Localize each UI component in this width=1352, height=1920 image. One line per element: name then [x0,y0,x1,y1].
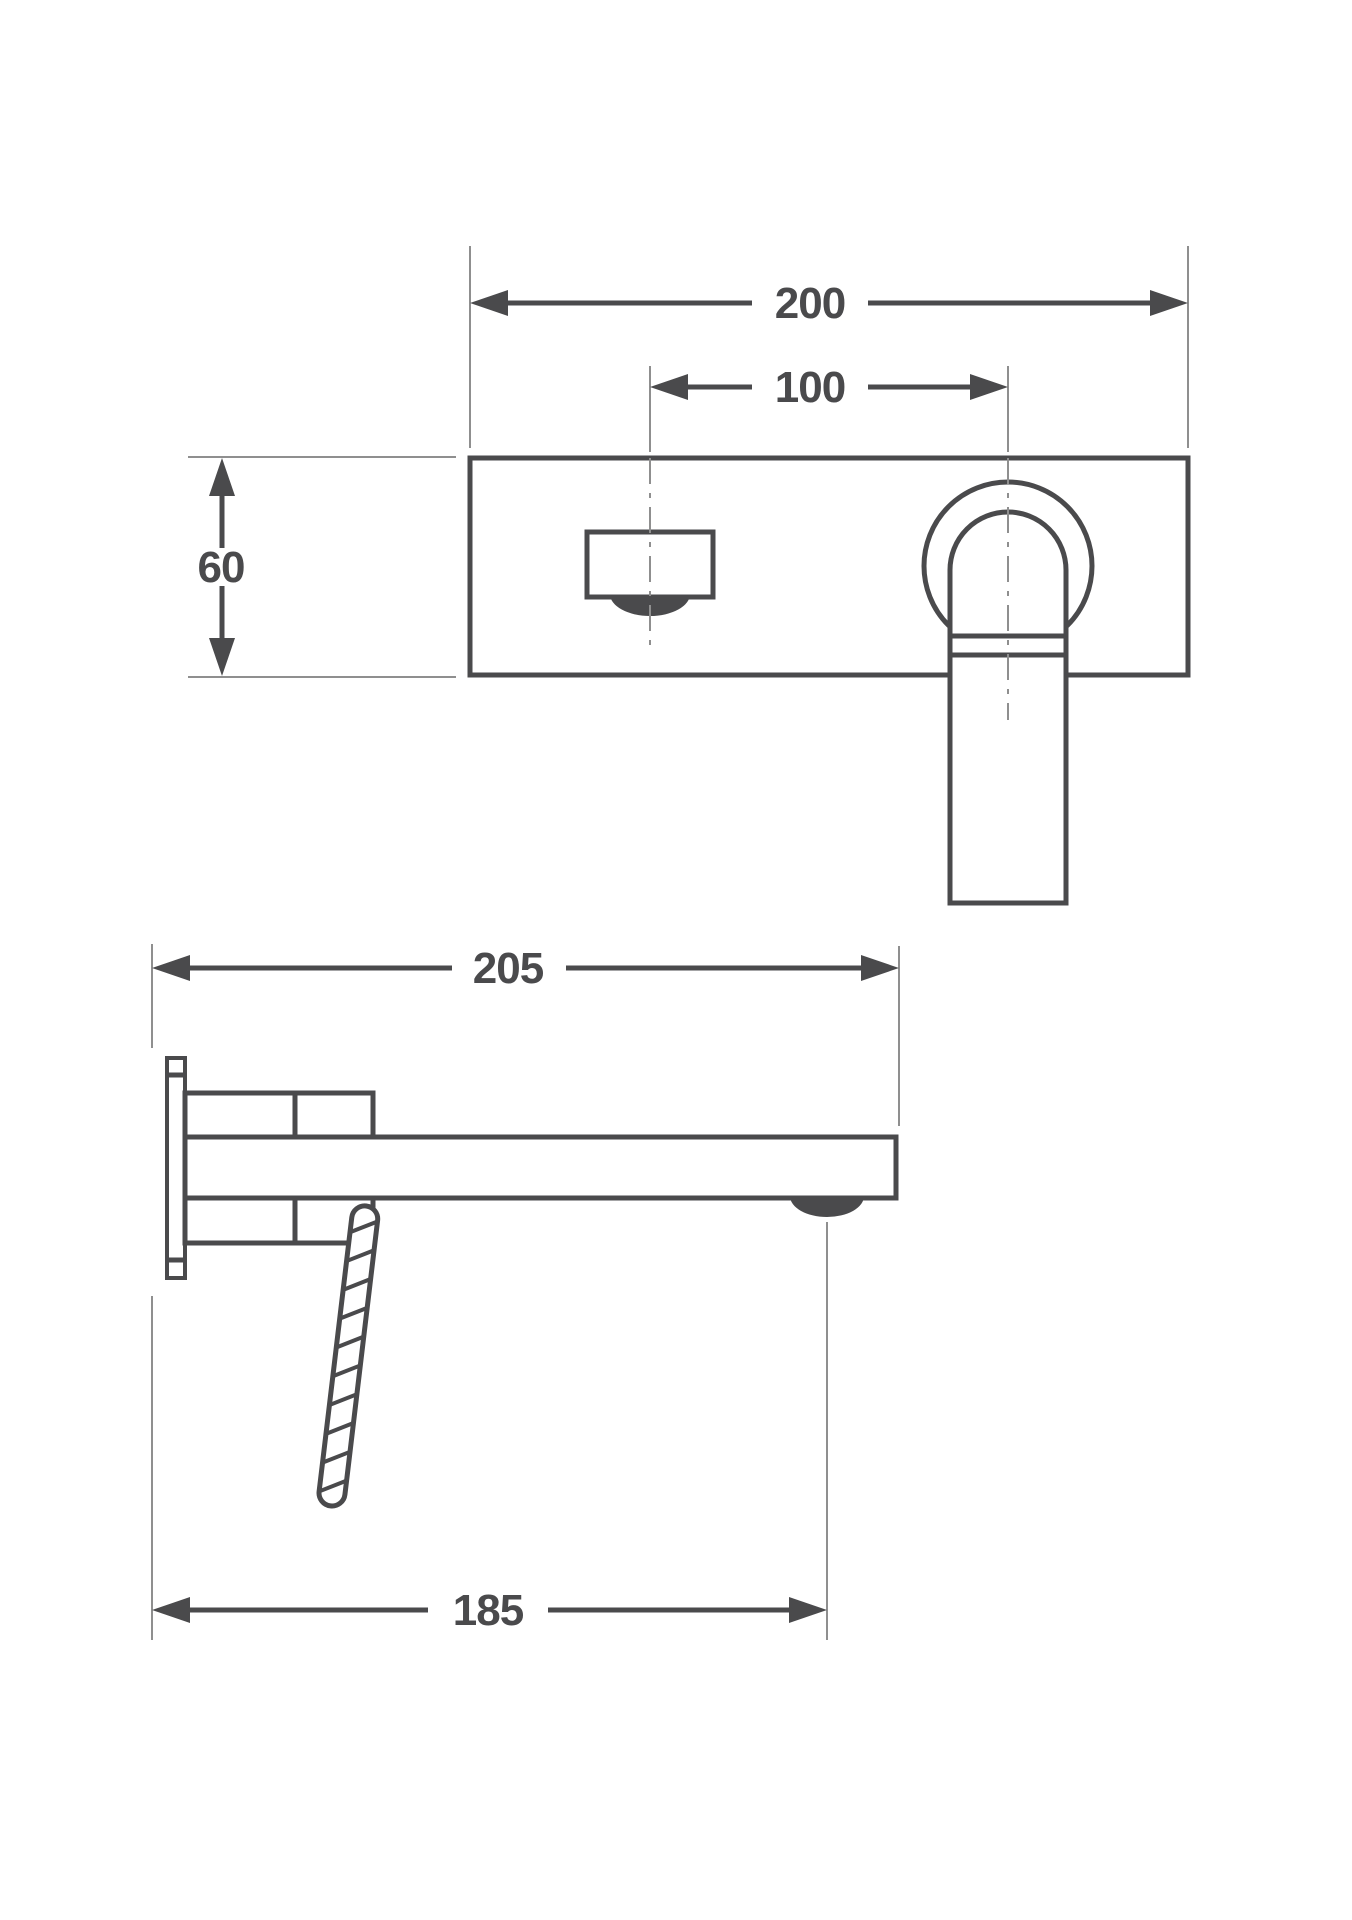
dimension-205-label: 205 [473,944,544,993]
side-view: 205 [152,944,899,1640]
dimension-185-label: 185 [453,1586,524,1635]
dimension-60-label: 60 [198,543,245,592]
upper-valve-body [185,1093,373,1137]
side-extension-lines [152,944,899,1640]
dimension-200: 200 [470,279,1188,328]
dimension-185: 185 [152,1586,827,1635]
arrowhead-right-icon [789,1597,827,1623]
arrowhead-left-icon [470,290,508,316]
faucet-dimension-drawing: 200 100 60 [0,0,1352,1920]
front-view: 200 100 60 [188,246,1188,903]
arrowhead-right-icon [861,955,899,981]
wall-plate-bar [167,1058,185,1278]
arrowhead-left-icon [152,955,190,981]
arrowhead-right-icon [970,374,1008,400]
wall-plate-side [167,1058,185,1278]
spout-side [185,1093,896,1243]
drawing-page: 200 100 60 [0,0,1352,1920]
spout-bar [185,1137,896,1198]
dimension-205: 205 [152,944,899,993]
dimension-100: 100 [650,363,1008,412]
arrowhead-left-icon [650,374,688,400]
aerator-side [790,1196,864,1217]
arrowhead-down-icon [209,638,235,676]
dimension-60: 60 [198,458,245,676]
arrowhead-right-icon [1150,290,1188,316]
arrowhead-up-icon [209,458,235,496]
lower-valve-body [185,1198,373,1243]
dimension-100-label: 100 [775,363,845,412]
arrowhead-left-icon [152,1597,190,1623]
handle-lever-side [318,1204,380,1507]
dimension-200-label: 200 [775,279,845,328]
